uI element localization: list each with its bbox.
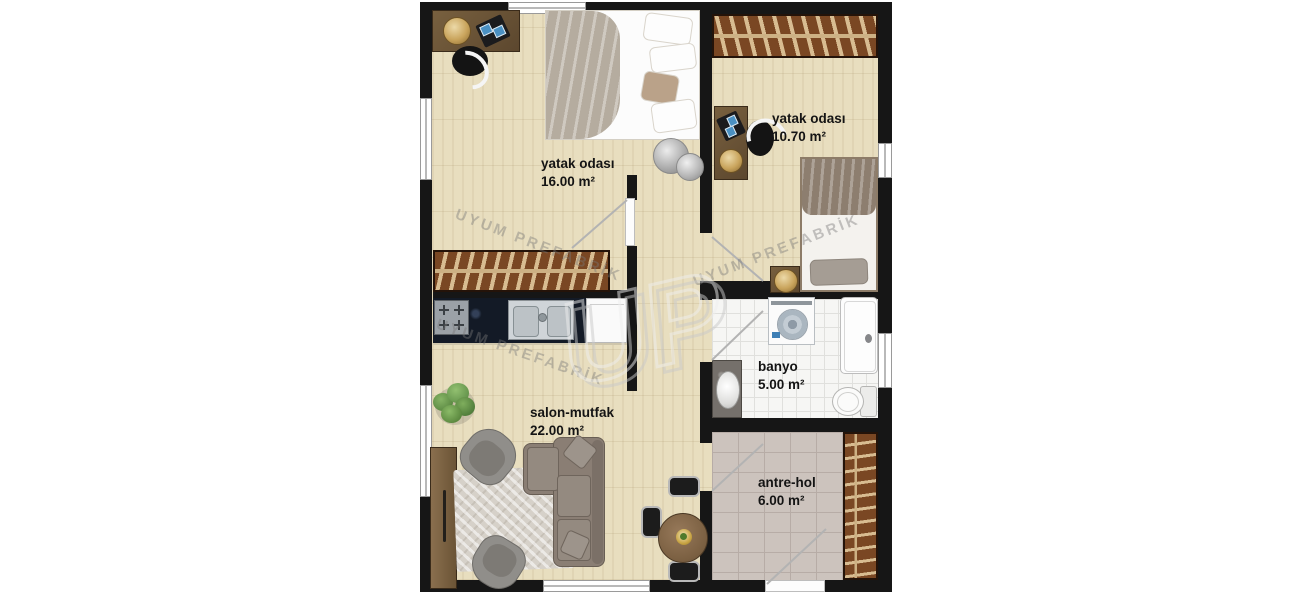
floor-plan-canvas: yatak odası 16.00 m² yatak odası 10.70 m… bbox=[0, 0, 1296, 600]
floor-plan: yatak odası 16.00 m² yatak odası 10.70 m… bbox=[420, 2, 892, 592]
room-label-entrance-hall: antre-hol 6.00 m² bbox=[758, 474, 816, 510]
room-area: 10.70 m² bbox=[772, 128, 846, 146]
room-area: 5.00 m² bbox=[758, 376, 805, 394]
room-name: yatak odası bbox=[772, 110, 846, 128]
room-label-bathroom: banyo 5.00 m² bbox=[758, 358, 805, 394]
room-name: banyo bbox=[758, 358, 805, 376]
room-name: antre-hol bbox=[758, 474, 816, 492]
room-label-bedroom-2: yatak odası 10.70 m² bbox=[772, 110, 846, 146]
room-name: yatak odası bbox=[541, 155, 615, 173]
room-label-bedroom-1: yatak odası 16.00 m² bbox=[541, 155, 615, 191]
room-area: 6.00 m² bbox=[758, 492, 816, 510]
room-area: 16.00 m² bbox=[541, 173, 615, 191]
